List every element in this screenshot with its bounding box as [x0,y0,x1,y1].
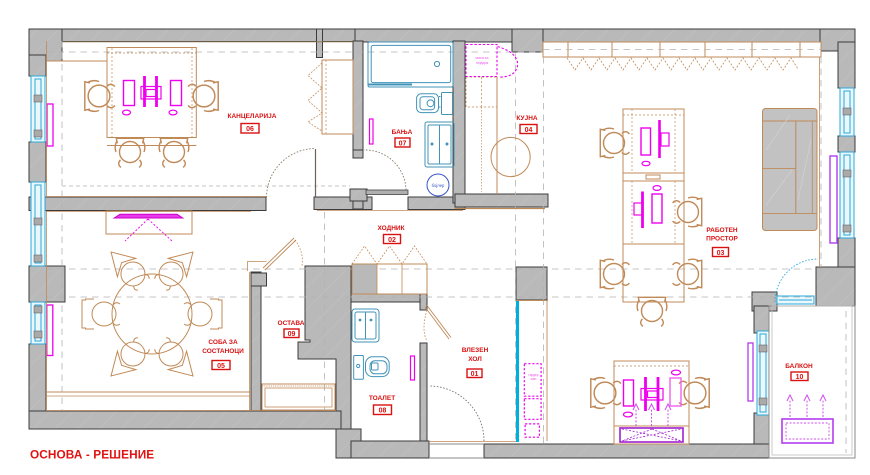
svg-text:КУЈНА: КУЈНА [516,115,537,122]
svg-text:КАНЦЕЛАРИЈА: КАНЦЕЛАРИЈА [227,113,276,120]
svg-text:РАБОТЕН: РАБОТЕН [706,227,737,234]
svg-text:СОБА ЗА: СОБА ЗА [208,339,238,346]
svg-text:01: 01 [471,371,479,378]
svg-text:02: 02 [388,237,396,244]
svg-text:09: 09 [288,331,296,338]
svg-text:БАЊА: БАЊА [392,129,413,136]
svg-text:10: 10 [796,374,804,381]
svg-text:ОСТАВА: ОСТАВА [278,320,305,327]
svg-text:БАЛКОН: БАЛКОН [785,363,813,370]
svg-text:ТОАЛЕТ: ТОАЛЕТ [369,395,395,402]
svg-text:07: 07 [399,141,407,148]
svg-text:ХОЛ: ХОЛ [468,356,482,363]
svg-text:ПРОСТОР: ПРОСТОР [706,236,738,243]
svg-text:бојлер: бојлер [432,183,445,188]
svg-text:ОСНОВА - РЕШЕНИЕ: ОСНОВА - РЕШЕНИЕ [30,448,154,462]
svg-text:04: 04 [525,127,533,134]
svg-text:СОСТАНОЦИ: СОСТАНОЦИ [202,348,244,355]
svg-text:06: 06 [246,126,254,133]
svg-text:ВЛЕЗЕН: ВЛЕЗЕН [462,347,489,354]
svg-text:05: 05 [217,363,225,370]
svg-text:03: 03 [717,250,725,257]
svg-text:маса за: маса за [476,56,489,60]
svg-text:појадок: појадок [476,61,489,65]
svg-text:ман: ман [531,377,537,381]
svg-text:ХОДНИК: ХОДНИК [377,225,404,232]
svg-text:08: 08 [379,408,387,415]
